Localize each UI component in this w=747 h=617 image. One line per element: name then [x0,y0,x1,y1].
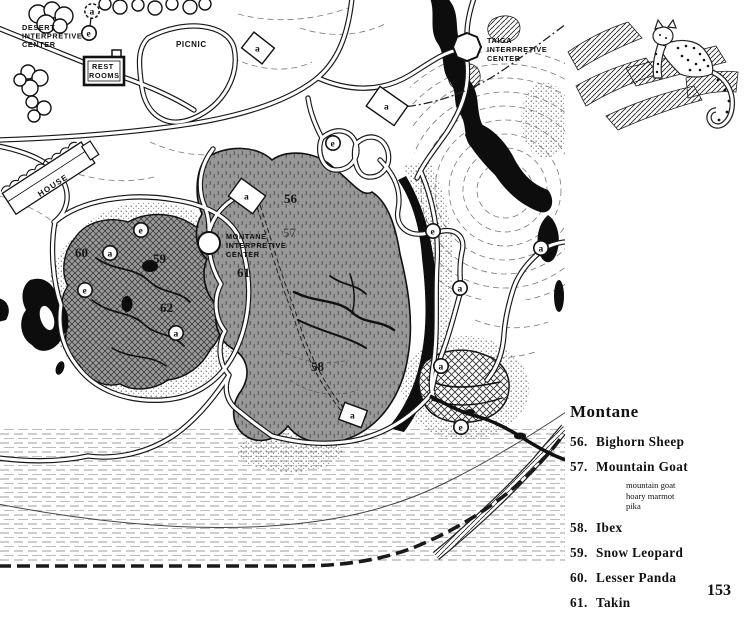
exhibit-62: 62 [160,300,173,315]
svg-text:a: a [174,330,179,340]
legend-item-57: 57.Mountain Goat [570,459,746,475]
rest-rooms-label: REST [92,62,114,71]
montane-center-building [198,232,220,254]
svg-text:a: a [384,103,389,113]
exhibit-60: 60 [75,245,88,260]
exhibit-61: 61 [237,265,250,280]
legend-item-59: 59.Snow Leopard [570,545,746,561]
svg-text:CENTER: CENTER [22,40,56,49]
svg-text:a: a [458,285,463,295]
stream-pool [465,409,475,415]
svg-text:ROOMS: ROOMS [89,71,120,80]
svg-text:a: a [255,45,260,55]
montane-center-label: MONTANE [226,232,267,241]
legend-item-58: 58.Ibex [570,520,746,536]
taiga-center-label: TAIGA [487,36,512,45]
svg-text:CENTER: CENTER [226,250,260,259]
taiga-center-building [453,33,481,61]
exhibit-56: 56 [284,191,298,206]
svg-text:INTERPRETIVE: INTERPRETIVE [487,45,547,54]
picnic-label: PICNIC [176,40,207,49]
svg-text:CENTER: CENTER [487,54,521,63]
svg-text:a: a [244,193,249,203]
book-page: a a a a a e e e a a e a e a a e DESERT I… [0,0,747,617]
legend-sublist-57: mountain goat hoary marmot pika [626,480,746,512]
svg-text:a: a [539,245,544,255]
exhibit-58: 58 [311,359,325,374]
svg-text:a: a [350,412,355,422]
svg-text:e: e [331,140,335,150]
svg-text:a: a [90,8,95,18]
svg-text:e: e [459,424,463,434]
exhibit-59: 59 [153,251,167,266]
svg-text:e: e [139,227,143,237]
legend-item-56: 56.Bighorn Sheep [570,434,746,450]
snow-leopard-illustration [566,8,746,140]
exhibit-57: 57 [283,225,297,240]
page-number: 153 [707,582,731,600]
svg-text:a: a [439,363,444,373]
legend-title: Montane [570,402,746,422]
zoo-map: a a a a a e e e a a e a e a a e DESERT I… [0,0,565,617]
svg-text:e: e [83,287,87,297]
svg-text:a: a [108,250,113,260]
stream-pool [514,433,526,440]
svg-text:INTERPRETIVE: INTERPRETIVE [226,241,286,250]
svg-text:e: e [87,30,91,40]
svg-text:e: e [431,228,435,238]
